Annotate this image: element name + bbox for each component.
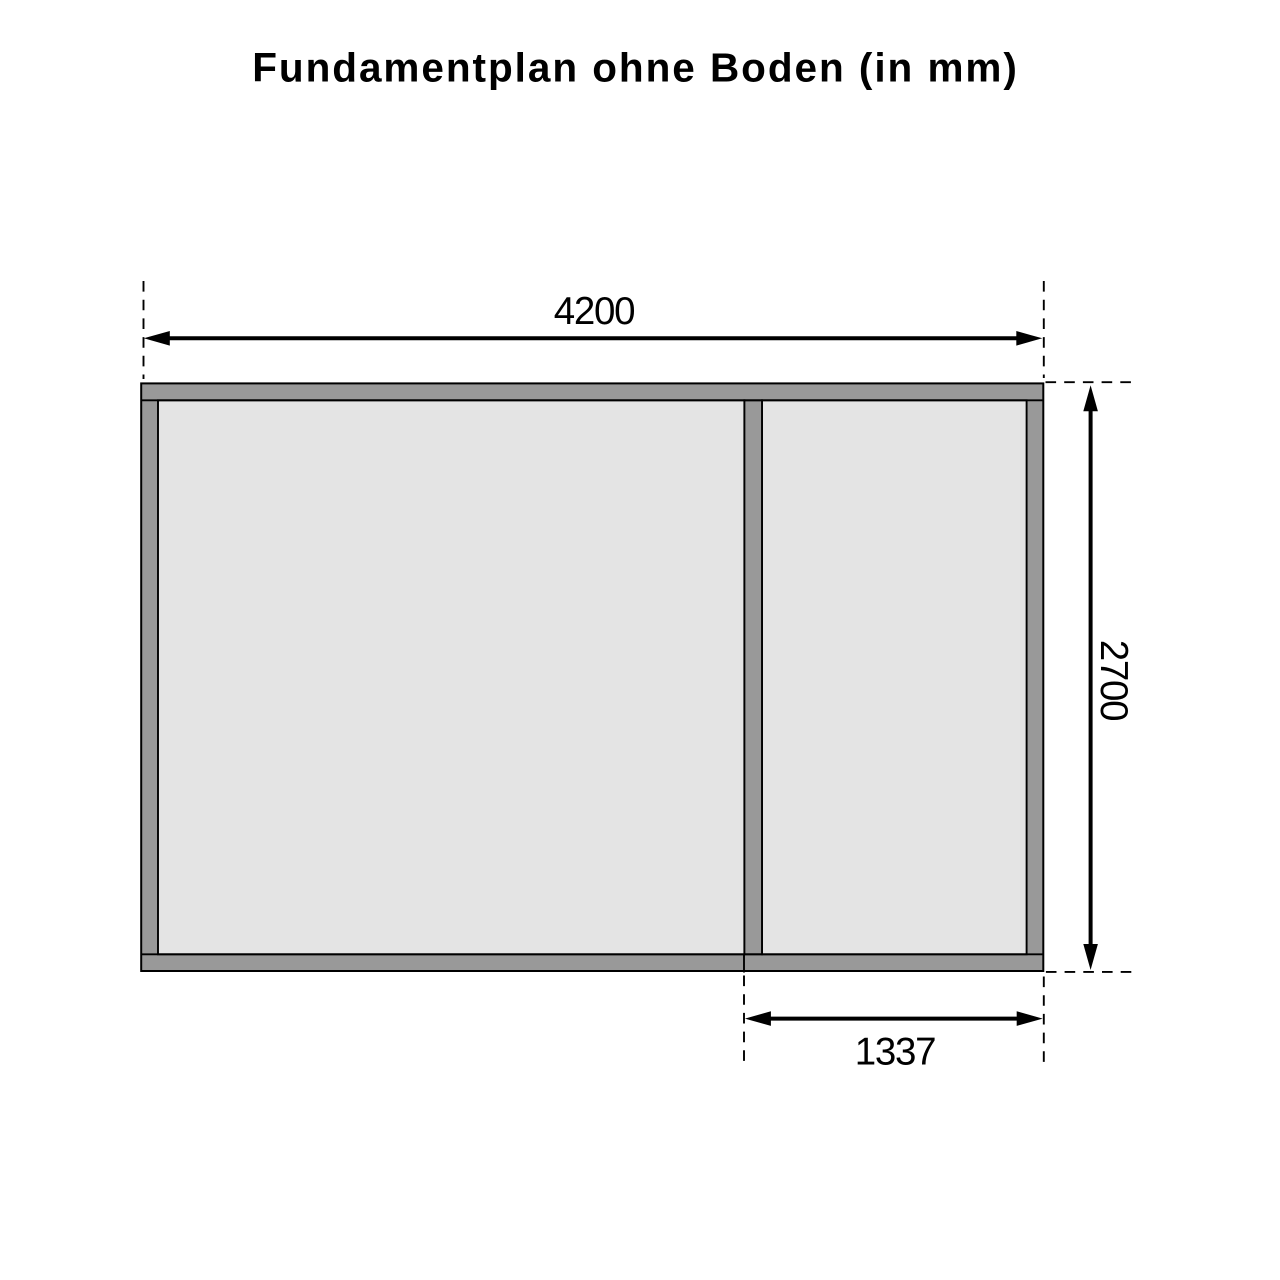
- svg-text:4200: 4200: [554, 290, 634, 333]
- svg-text:Fundamentplan ohne Boden (in m: Fundamentplan ohne Boden (in mm): [252, 44, 1019, 90]
- svg-text:1337: 1337: [855, 1031, 935, 1074]
- svg-text:2700: 2700: [1092, 640, 1135, 720]
